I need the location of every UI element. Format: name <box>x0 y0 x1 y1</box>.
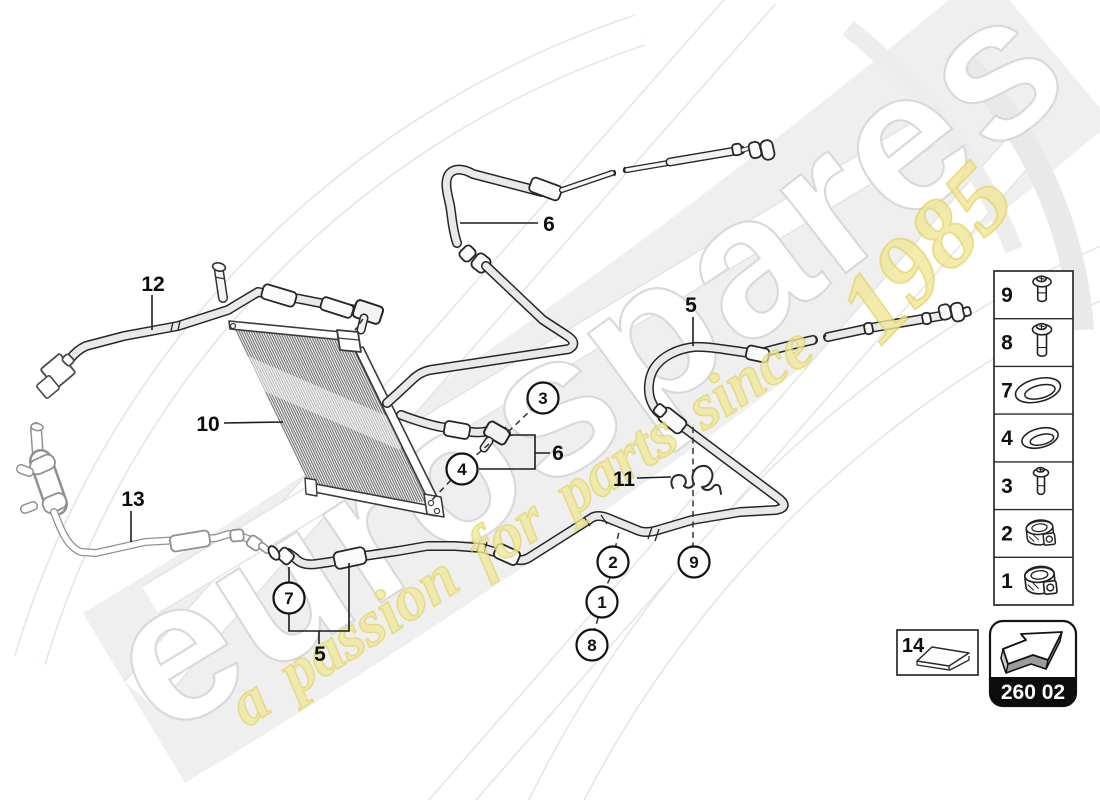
svg-text:260 02: 260 02 <box>1001 681 1065 704</box>
svg-text:5: 5 <box>314 643 326 666</box>
svg-text:1: 1 <box>1001 570 1013 593</box>
svg-text:12: 12 <box>141 273 164 296</box>
svg-text:11: 11 <box>613 468 636 491</box>
svg-text:13: 13 <box>121 488 144 511</box>
svg-text:8: 8 <box>587 636 596 655</box>
svg-text:5: 5 <box>685 294 697 317</box>
svg-text:14: 14 <box>902 635 925 657</box>
svg-text:6: 6 <box>543 213 555 236</box>
svg-text:3: 3 <box>538 389 547 408</box>
svg-text:6: 6 <box>552 442 564 465</box>
svg-text:4: 4 <box>1001 427 1013 450</box>
svg-text:4: 4 <box>457 460 467 479</box>
svg-text:2: 2 <box>1001 522 1013 545</box>
svg-text:7: 7 <box>284 589 293 608</box>
svg-text:9: 9 <box>1001 284 1013 307</box>
svg-text:7: 7 <box>1001 379 1013 402</box>
svg-text:2: 2 <box>608 553 617 572</box>
svg-text:9: 9 <box>689 553 698 572</box>
svg-text:3: 3 <box>1001 475 1013 498</box>
svg-text:1: 1 <box>597 593 606 612</box>
svg-text:10: 10 <box>196 413 219 436</box>
svg-text:8: 8 <box>1001 332 1013 355</box>
